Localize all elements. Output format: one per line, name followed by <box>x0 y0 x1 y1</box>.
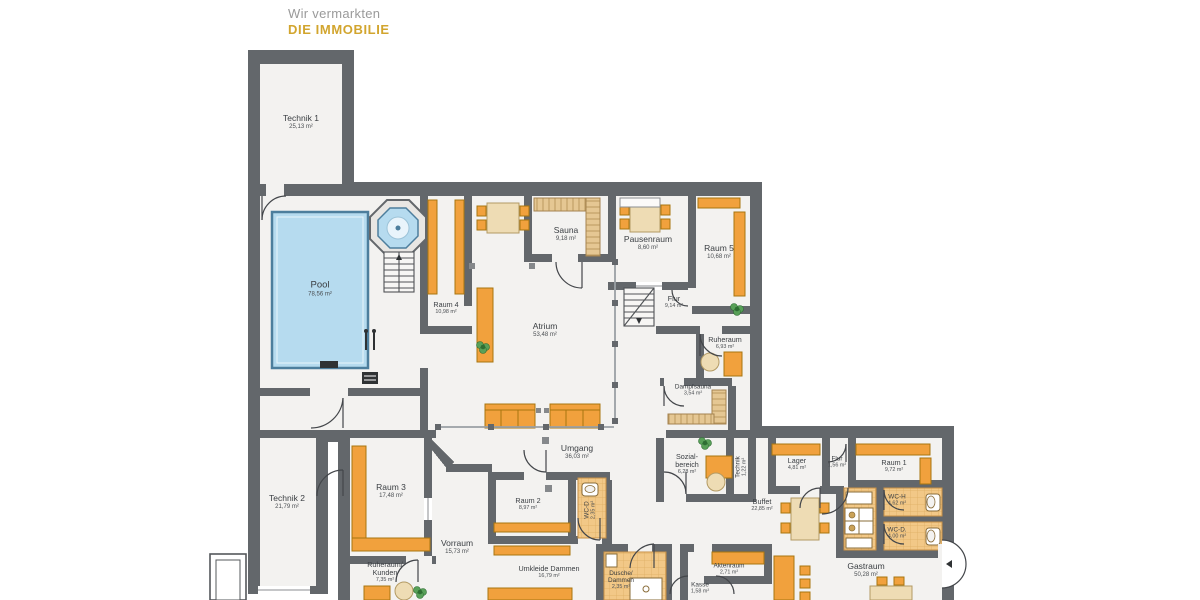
pool <box>272 212 376 368</box>
bar-stool <box>800 566 810 575</box>
raum5-top-cabinet <box>698 198 740 208</box>
aktenraum-desk <box>712 552 764 564</box>
exterior-structure <box>210 554 246 600</box>
bar-stool <box>800 592 810 600</box>
kunden-lounger <box>364 586 390 600</box>
shower-tray-icon <box>630 578 662 600</box>
umkleide-bench-top <box>494 546 570 555</box>
umkleide-bench-bottom <box>488 588 572 600</box>
raum1-shelf-side <box>920 458 931 484</box>
gastraum-entry-door <box>938 540 966 588</box>
toilet-icon <box>926 494 940 511</box>
lager-shelf <box>772 444 820 455</box>
kunden-round-table <box>395 582 413 600</box>
raum3-bench-bottom <box>352 538 430 551</box>
gastraum-counter <box>774 556 794 600</box>
heater-icon <box>362 372 378 384</box>
raum3-bench-left <box>352 446 366 538</box>
ruheraum-lounger <box>724 352 742 376</box>
whirlpool <box>370 200 426 256</box>
stairs-pool <box>384 252 414 292</box>
raum4-wardrobe-left <box>428 200 437 294</box>
raum1-shelf-top <box>856 444 930 455</box>
sozial-round-table <box>707 473 725 491</box>
floor-plan-drawing <box>0 0 1200 600</box>
double-sink-icon <box>845 492 873 548</box>
pausenraum-sideboard <box>620 198 660 207</box>
pool-steps-icon <box>320 361 338 368</box>
stairs-flur <box>624 288 654 326</box>
toilet-icon <box>582 483 598 496</box>
floorplan-page: Wir vermarkten DIE IMMOBILIE <box>0 0 1200 600</box>
raum5-wardrobe <box>734 212 745 296</box>
raum4-wardrobe-right <box>455 200 464 294</box>
sink-icon <box>606 554 617 567</box>
raum2-bench <box>494 523 570 532</box>
toilet-icon <box>926 528 940 545</box>
bar-stool <box>800 579 810 588</box>
